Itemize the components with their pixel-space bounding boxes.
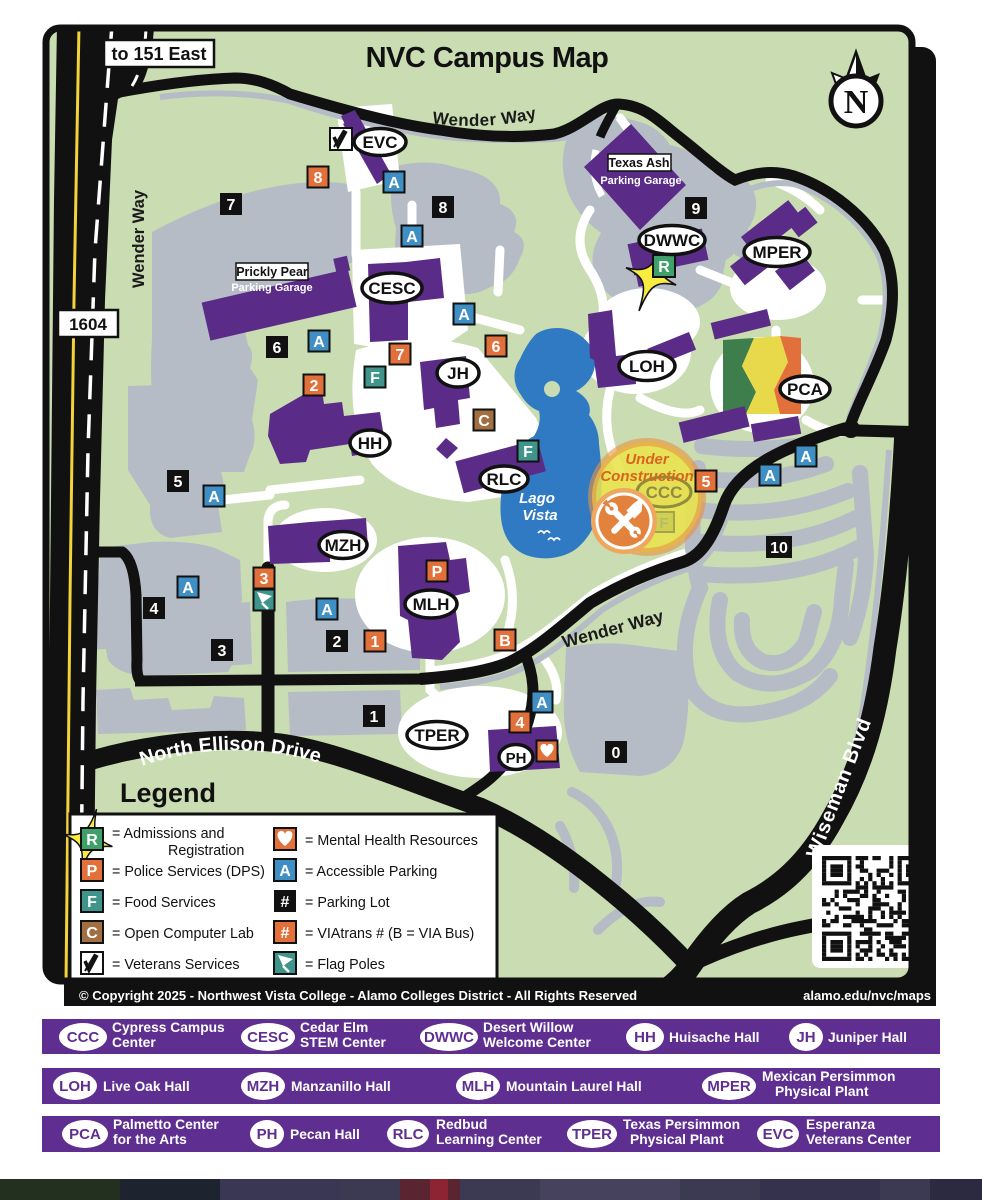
- svg-text:C: C: [478, 413, 490, 430]
- svg-text:Under: Under: [625, 451, 670, 468]
- svg-text:Texas Persimmon: Texas Persimmon: [623, 1117, 740, 1132]
- svg-text:9: 9: [692, 201, 701, 218]
- svg-text:Manzanillo Hall: Manzanillo Hall: [291, 1079, 391, 1094]
- svg-text:1: 1: [371, 634, 380, 651]
- svg-text:alamo.edu/nvc/maps: alamo.edu/nvc/maps: [803, 988, 931, 1003]
- svg-text:TPER: TPER: [572, 1126, 612, 1143]
- svg-text:PH: PH: [257, 1126, 278, 1143]
- svg-text:MZH: MZH: [325, 536, 362, 555]
- svg-text:7: 7: [227, 197, 236, 214]
- svg-text:HH: HH: [358, 434, 383, 453]
- svg-text:Palmetto Center: Palmetto Center: [113, 1117, 219, 1132]
- svg-text:DWWC: DWWC: [644, 231, 701, 250]
- svg-text:Physical Plant: Physical Plant: [775, 1084, 869, 1099]
- svg-text:= Accessible Parking: = Accessible Parking: [305, 864, 437, 880]
- svg-text:Parking Garage: Parking Garage: [600, 175, 681, 187]
- svg-text:CCC: CCC: [646, 483, 683, 502]
- svg-text:4: 4: [150, 601, 159, 618]
- svg-text:= Parking Lot: = Parking Lot: [305, 895, 390, 911]
- svg-text:10: 10: [770, 540, 788, 557]
- svg-text:5: 5: [174, 474, 183, 491]
- svg-text:Desert Willow: Desert Willow: [483, 1020, 574, 1035]
- svg-text:CESC: CESC: [368, 279, 415, 298]
- svg-text:JH: JH: [796, 1029, 815, 1046]
- svg-text:LOH: LOH: [59, 1078, 91, 1095]
- svg-text:CCC: CCC: [67, 1029, 100, 1046]
- svg-text:5: 5: [702, 474, 711, 491]
- svg-text:MPER: MPER: [752, 243, 801, 262]
- svg-text:Juniper Hall: Juniper Hall: [828, 1030, 907, 1045]
- svg-text:Registration: Registration: [168, 843, 244, 859]
- svg-text:P: P: [87, 863, 98, 880]
- svg-text:Wender Way: Wender Way: [130, 189, 148, 288]
- svg-text:#: #: [281, 894, 290, 911]
- svg-text:1604: 1604: [69, 315, 107, 334]
- svg-text:= Open Computer Lab: = Open Computer Lab: [112, 926, 254, 942]
- svg-text:Center: Center: [112, 1035, 156, 1050]
- svg-text:2: 2: [333, 634, 342, 651]
- svg-text:Cypress Campus: Cypress Campus: [112, 1020, 225, 1035]
- svg-text:Esperanza: Esperanza: [806, 1117, 875, 1132]
- svg-text:A: A: [313, 334, 325, 351]
- svg-text:A: A: [764, 468, 776, 485]
- svg-text:Construction: Construction: [600, 468, 693, 485]
- svg-text:N: N: [844, 84, 869, 121]
- svg-text:3: 3: [218, 643, 227, 660]
- svg-text:Prickly Pear: Prickly Pear: [236, 265, 308, 279]
- svg-text:8: 8: [439, 200, 448, 217]
- svg-text:PCA: PCA: [787, 380, 823, 399]
- svg-text:NVC Campus Map: NVC Campus Map: [366, 42, 609, 74]
- svg-text:2: 2: [310, 378, 319, 395]
- svg-text:A: A: [388, 175, 400, 192]
- svg-text:R: R: [658, 259, 670, 276]
- svg-text:A: A: [208, 489, 220, 506]
- svg-text:B: B: [499, 633, 511, 650]
- svg-text:LOH: LOH: [629, 357, 665, 376]
- svg-text:EVC: EVC: [763, 1126, 794, 1143]
- svg-text:4: 4: [516, 715, 525, 732]
- svg-text:CESC: CESC: [247, 1029, 289, 1046]
- svg-text:Lago: Lago: [519, 490, 555, 507]
- svg-text:6: 6: [273, 340, 282, 357]
- svg-text:MLH: MLH: [462, 1078, 495, 1095]
- svg-text:P: P: [432, 564, 443, 581]
- svg-text:Texas Ash: Texas Ash: [608, 156, 669, 170]
- svg-text:= Mental Health Resources: = Mental Health Resources: [305, 833, 478, 849]
- svg-text:TPER: TPER: [414, 726, 459, 745]
- svg-text:= Admissions and: = Admissions and: [112, 826, 225, 842]
- svg-text:= Police Services (DPS): = Police Services (DPS): [112, 864, 265, 880]
- svg-text:A: A: [406, 229, 418, 246]
- svg-text:Mountain Laurel Hall: Mountain Laurel Hall: [506, 1079, 642, 1094]
- svg-text:Live Oak Hall: Live Oak Hall: [103, 1079, 190, 1094]
- svg-text:Legend: Legend: [120, 778, 216, 808]
- svg-text:Physical Plant: Physical Plant: [630, 1132, 724, 1147]
- svg-text:Huisache Hall: Huisache Hall: [669, 1030, 759, 1045]
- svg-text:F: F: [370, 370, 380, 387]
- svg-text:C: C: [86, 925, 98, 942]
- svg-text:to 151 East: to 151 East: [111, 44, 206, 64]
- svg-text:Redbud: Redbud: [436, 1117, 487, 1132]
- svg-text:F: F: [659, 515, 668, 532]
- svg-text:= Food Services: = Food Services: [112, 895, 216, 911]
- svg-text:STEM Center: STEM Center: [300, 1035, 386, 1050]
- svg-text:Welcome Center: Welcome Center: [483, 1035, 591, 1050]
- svg-text:= Flag Poles: = Flag Poles: [305, 957, 385, 973]
- svg-text:A: A: [800, 449, 812, 466]
- svg-text:A: A: [458, 307, 470, 324]
- svg-text:Pecan Hall: Pecan Hall: [290, 1127, 360, 1142]
- svg-text:DWWC: DWWC: [424, 1029, 474, 1046]
- svg-text:6: 6: [492, 339, 501, 356]
- svg-text:R: R: [86, 832, 98, 849]
- svg-text:Veterans Center: Veterans Center: [806, 1132, 912, 1147]
- svg-text:EVC: EVC: [363, 133, 398, 152]
- svg-text:Learning Center: Learning Center: [436, 1132, 542, 1147]
- svg-text:F: F: [523, 444, 533, 461]
- svg-text:0: 0: [612, 745, 621, 762]
- svg-text:#: #: [281, 925, 290, 942]
- svg-text:© Copyright 2025 - Northwest V: © Copyright 2025 - Northwest Vista Colle…: [79, 988, 637, 1003]
- svg-text:= VIAtrans # (B = VIA Bus): = VIAtrans # (B = VIA Bus): [305, 926, 474, 942]
- svg-text:RLC: RLC: [487, 470, 522, 489]
- svg-text:A: A: [182, 580, 194, 597]
- svg-text:A: A: [321, 602, 333, 619]
- svg-text:MZH: MZH: [247, 1078, 280, 1095]
- svg-text:for the Arts: for the Arts: [113, 1132, 187, 1147]
- svg-text:Parking Garage: Parking Garage: [231, 282, 312, 294]
- svg-text:JH: JH: [447, 364, 469, 383]
- svg-text:= Veterans Services: = Veterans Services: [112, 957, 240, 973]
- svg-text:MPER: MPER: [707, 1078, 751, 1095]
- svg-text:3: 3: [260, 571, 269, 588]
- svg-text:Mexican Persimmon: Mexican Persimmon: [762, 1069, 895, 1084]
- svg-text:HH: HH: [634, 1029, 656, 1046]
- svg-text:PCA: PCA: [69, 1126, 101, 1143]
- svg-text:7: 7: [396, 347, 405, 364]
- svg-text:Cedar Elm: Cedar Elm: [300, 1020, 368, 1035]
- svg-text:Vista: Vista: [522, 507, 557, 524]
- svg-text:PH: PH: [506, 750, 527, 767]
- svg-text:MLH: MLH: [413, 595, 450, 614]
- svg-text:1: 1: [370, 709, 379, 726]
- svg-text:F: F: [87, 894, 97, 911]
- svg-text:A: A: [536, 695, 548, 712]
- svg-text:8: 8: [314, 170, 323, 187]
- svg-text:RLC: RLC: [393, 1126, 424, 1143]
- svg-text:A: A: [279, 863, 291, 880]
